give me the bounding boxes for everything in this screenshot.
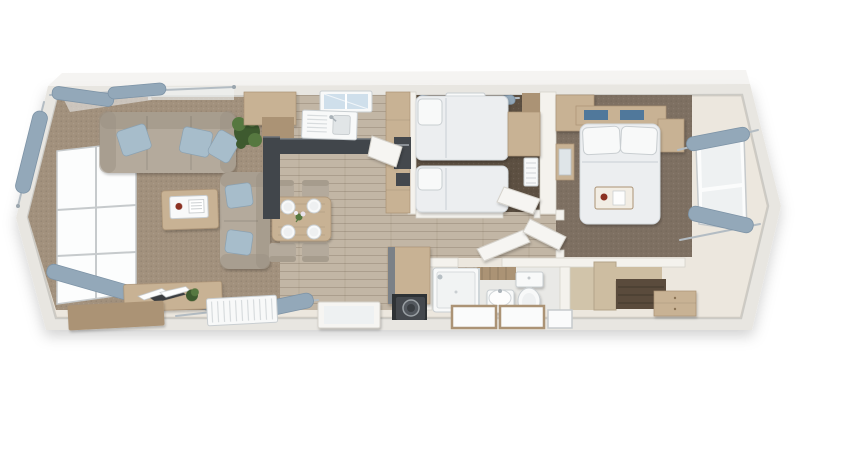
frosted-window — [452, 306, 496, 328]
wall-master-door-post-top — [556, 210, 564, 220]
twin-wardrobe — [508, 112, 540, 156]
nook-wood-panel — [612, 267, 662, 281]
single-bed-1 — [416, 96, 508, 160]
microwave — [396, 173, 410, 186]
drain — [455, 291, 458, 294]
cup — [601, 194, 608, 201]
flush-button — [528, 277, 531, 280]
floor-plan-svg: 3D top-down floor plan render of a two-b… — [0, 0, 858, 460]
wall-bathroom-east — [560, 267, 570, 310]
walk-in-wardrobe-floor — [570, 267, 596, 310]
sink-with-drainer — [302, 110, 358, 140]
napkin — [613, 191, 625, 205]
dining-table — [272, 197, 331, 241]
wall-twin-master — [540, 92, 556, 214]
blue-runner — [584, 110, 608, 120]
coffee-table — [161, 189, 218, 230]
worktop-left — [263, 137, 280, 219]
sink-bowl — [333, 115, 351, 135]
pillow — [582, 126, 620, 155]
scatter-cushion — [224, 229, 253, 255]
utility-cupboard — [388, 247, 430, 320]
pillow — [418, 168, 442, 190]
vanity-mirror — [556, 144, 574, 180]
storage-bench — [67, 301, 164, 331]
blue-runner — [620, 110, 644, 120]
breakfast-tray — [595, 187, 633, 209]
twin-shelf — [522, 93, 540, 112]
nightstand — [658, 119, 684, 152]
twin-radiator — [524, 158, 538, 186]
frosted-window — [500, 306, 544, 328]
floor-plan-page: 3D top-down floor plan render of a two-b… — [0, 0, 858, 460]
single-bed-2 — [416, 166, 508, 212]
loveseat-sofa — [220, 172, 270, 269]
worktop-back — [280, 139, 374, 154]
pillow — [418, 99, 442, 125]
bathroom-windows — [452, 306, 572, 328]
basin-tap — [498, 289, 502, 293]
shower-head — [438, 275, 443, 280]
overhead-cabinet-return — [262, 117, 294, 138]
pillow — [620, 126, 657, 155]
wall-twin-door-post — [534, 210, 540, 218]
corner-sofa — [99, 111, 241, 173]
frosted-window — [548, 310, 572, 328]
entrance-door-glass — [324, 306, 374, 324]
scatter-cushion — [225, 182, 254, 208]
double-bed — [580, 124, 660, 224]
living-radiator — [206, 295, 277, 326]
bench-drawers — [654, 291, 696, 316]
washing-machine — [396, 297, 425, 320]
roof-light-kitchen — [320, 91, 372, 112]
cistern — [516, 272, 543, 287]
